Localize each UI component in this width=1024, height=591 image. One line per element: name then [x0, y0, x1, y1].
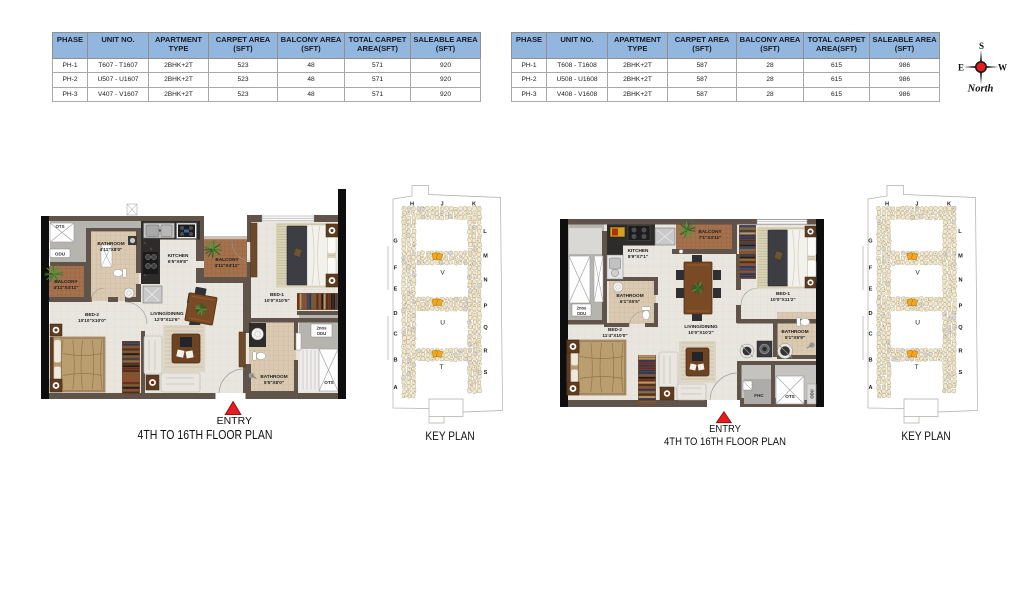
- svg-text:H: H: [410, 202, 414, 208]
- svg-text:F: F: [394, 266, 398, 272]
- svg-text:A: A: [393, 385, 397, 391]
- svg-text:E: E: [394, 287, 398, 293]
- svg-text:D: D: [869, 311, 873, 317]
- svg-text:C: C: [869, 332, 873, 338]
- svg-text:Q: Q: [959, 325, 964, 331]
- svg-text:North: North: [967, 84, 994, 95]
- svg-text:J: J: [916, 202, 919, 208]
- svg-text:U: U: [440, 319, 445, 326]
- svg-text:FHC: FHC: [754, 393, 764, 398]
- svg-text:BATHROOM: BATHROOM: [616, 293, 643, 298]
- svg-text:BED-1: BED-1: [270, 292, 284, 297]
- svg-text:OTS: OTS: [785, 394, 794, 399]
- svg-text:BED-2: BED-2: [608, 327, 622, 332]
- svg-text:ODU: ODU: [810, 389, 815, 398]
- svg-text:4'11"X8'0": 4'11"X8'0": [100, 247, 123, 252]
- svg-text:E: E: [958, 63, 964, 73]
- svg-text:N: N: [483, 278, 487, 284]
- svg-text:BALCONY: BALCONY: [698, 229, 722, 234]
- svg-text:L: L: [959, 229, 963, 235]
- svg-text:R: R: [959, 349, 963, 355]
- svg-text:5'1"X5'9": 5'1"X5'9": [785, 335, 805, 340]
- svg-text:5'5"X8'0": 5'5"X8'0": [264, 380, 284, 385]
- svg-text:ODU: ODU: [55, 252, 66, 257]
- svg-text:4'11"X4'11": 4'11"X4'11": [54, 285, 79, 290]
- svg-text:M: M: [483, 254, 488, 260]
- svg-text:BATHROOM: BATHROOM: [97, 241, 124, 246]
- svg-text:J: J: [440, 202, 443, 208]
- svg-text:N: N: [959, 278, 963, 284]
- svg-text:7'1"X3'11": 7'1"X3'11": [699, 235, 722, 240]
- svg-text:BALCONY: BALCONY: [54, 279, 78, 284]
- svg-text:A: A: [869, 385, 873, 391]
- svg-text:P: P: [959, 304, 963, 310]
- svg-text:S: S: [484, 370, 488, 376]
- svg-text:BATHROOM: BATHROOM: [260, 374, 287, 379]
- svg-text:H: H: [885, 202, 889, 208]
- svg-text:U: U: [916, 319, 921, 326]
- svg-text:OTS: OTS: [324, 380, 333, 385]
- svg-text:BED-1: BED-1: [776, 291, 790, 296]
- svg-text:10'0"X10'2": 10'0"X10'2": [688, 330, 713, 335]
- svg-text:R: R: [483, 349, 487, 355]
- svg-text:L: L: [483, 229, 487, 235]
- svg-text:V: V: [916, 270, 921, 277]
- svg-text:K: K: [472, 202, 476, 208]
- svg-text:B: B: [393, 358, 397, 364]
- svg-text:G: G: [393, 239, 397, 245]
- svg-text:K: K: [947, 202, 951, 208]
- svg-text:BED-2: BED-2: [85, 312, 99, 317]
- svg-text:OTS: OTS: [55, 224, 64, 229]
- svg-text:W: W: [998, 63, 1007, 73]
- svg-text:T: T: [439, 364, 443, 371]
- svg-text:KITCHEN: KITCHEN: [168, 253, 189, 258]
- svg-text:M: M: [958, 254, 963, 260]
- svg-text:11'4"X10'0": 11'4"X10'0": [602, 333, 627, 338]
- svg-text:C: C: [393, 332, 397, 338]
- svg-text:ODU: ODU: [317, 331, 327, 336]
- svg-text:KITCHEN: KITCHEN: [628, 248, 649, 253]
- svg-text:LIVING/DINING: LIVING/DINING: [150, 311, 184, 316]
- svg-text:B: B: [869, 358, 873, 364]
- svg-text:6'1"X5'5": 6'1"X5'5": [620, 299, 640, 304]
- svg-text:V: V: [440, 270, 445, 277]
- svg-text:4'11"X4'11": 4'11"X4'11": [215, 263, 240, 268]
- svg-text:BATHROOM: BATHROOM: [781, 329, 808, 334]
- svg-text:BALCONY: BALCONY: [215, 257, 239, 262]
- svg-text:10'10"X10'0": 10'10"X10'0": [78, 318, 106, 323]
- svg-text:2nos: 2nos: [577, 306, 587, 311]
- svg-text:8'9"X7'1": 8'9"X7'1": [628, 254, 648, 259]
- svg-text:10'0"X10'5": 10'0"X10'5": [264, 298, 289, 303]
- svg-text:P: P: [484, 304, 488, 310]
- svg-text:S: S: [959, 370, 963, 376]
- svg-text:G: G: [869, 239, 873, 245]
- svg-text:D: D: [393, 311, 397, 317]
- svg-text:S: S: [979, 41, 984, 51]
- svg-text:Q: Q: [483, 325, 488, 331]
- svg-text:6'5"X9'8": 6'5"X9'8": [168, 259, 188, 264]
- svg-text:12'0"X12'6": 12'0"X12'6": [154, 317, 179, 322]
- svg-text:F: F: [869, 266, 873, 272]
- svg-text:10'0"X11'2": 10'0"X11'2": [770, 297, 795, 302]
- svg-text:LIVING/DINING: LIVING/DINING: [684, 324, 718, 329]
- svg-text:ODU: ODU: [577, 311, 586, 316]
- svg-text:2nos: 2nos: [316, 326, 327, 331]
- svg-text:E: E: [869, 287, 873, 293]
- svg-text:T: T: [915, 364, 919, 371]
